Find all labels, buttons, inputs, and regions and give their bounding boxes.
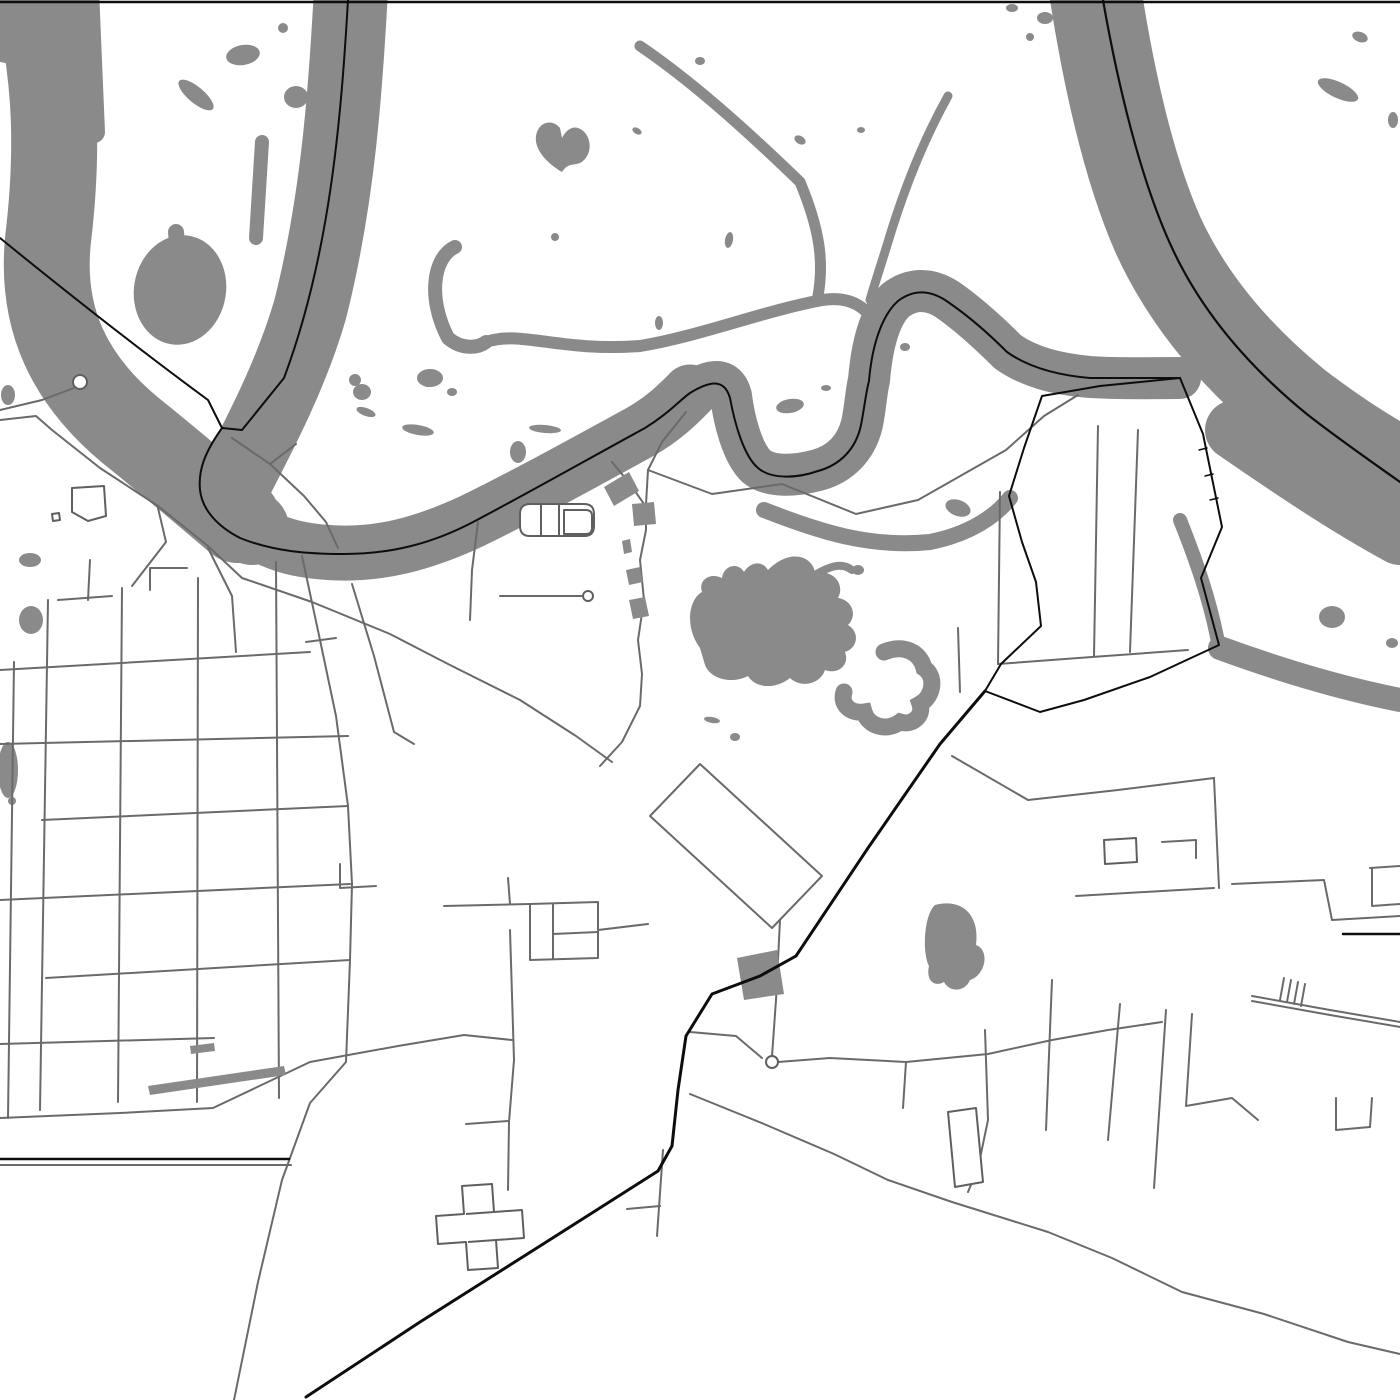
pond-blob bbox=[355, 405, 377, 419]
pond-blob bbox=[1340, 679, 1350, 687]
pond-blob bbox=[1351, 30, 1369, 45]
buildings-layer bbox=[52, 472, 1137, 1270]
pond-blob bbox=[1319, 606, 1345, 628]
street-map-svg bbox=[0, 0, 1400, 1400]
pond-blob bbox=[225, 42, 262, 68]
pond-blob bbox=[529, 424, 562, 435]
water-layer bbox=[30, 0, 1400, 990]
pond-blob bbox=[793, 134, 807, 147]
road-node-circle bbox=[73, 375, 87, 389]
pond-blob bbox=[125, 228, 235, 352]
pond-blob bbox=[943, 496, 973, 520]
pond-blob bbox=[353, 384, 371, 400]
pond-blob bbox=[19, 606, 43, 634]
pond-blob bbox=[447, 388, 457, 396]
pond-blob bbox=[1315, 73, 1362, 106]
pond-blob bbox=[775, 397, 805, 416]
road-node-circle bbox=[583, 591, 593, 601]
pond-blob bbox=[417, 369, 443, 387]
pond-blob bbox=[349, 374, 361, 386]
pond-blob bbox=[0, 742, 18, 798]
pond-blob bbox=[510, 441, 526, 463]
pond-blob bbox=[278, 23, 288, 33]
pond-blob bbox=[174, 75, 218, 116]
pond-blob bbox=[401, 422, 434, 437]
pond-blob bbox=[1037, 12, 1053, 24]
pond-blob bbox=[551, 233, 559, 241]
pond-blob bbox=[730, 733, 740, 741]
pond-blob bbox=[1320, 674, 1334, 684]
pond-blob bbox=[655, 316, 663, 330]
pond-blob bbox=[852, 565, 864, 575]
pond-blob bbox=[284, 86, 308, 108]
pond-blob bbox=[1026, 33, 1034, 41]
road-node-circle bbox=[766, 1056, 778, 1068]
pond-blob bbox=[704, 716, 721, 725]
pond-blob bbox=[1388, 112, 1398, 128]
pond-blob bbox=[19, 553, 41, 567]
pond-blob bbox=[857, 127, 865, 133]
pond-blob bbox=[900, 343, 910, 351]
pond-blob bbox=[695, 57, 705, 65]
map-canvas bbox=[0, 0, 1400, 1400]
pond-blob bbox=[821, 385, 831, 391]
pond-blob bbox=[1, 385, 15, 405]
pond-blob bbox=[724, 231, 735, 248]
pond-blob bbox=[1006, 4, 1018, 12]
pond-blob bbox=[631, 126, 643, 136]
pond-blob bbox=[1386, 638, 1398, 648]
